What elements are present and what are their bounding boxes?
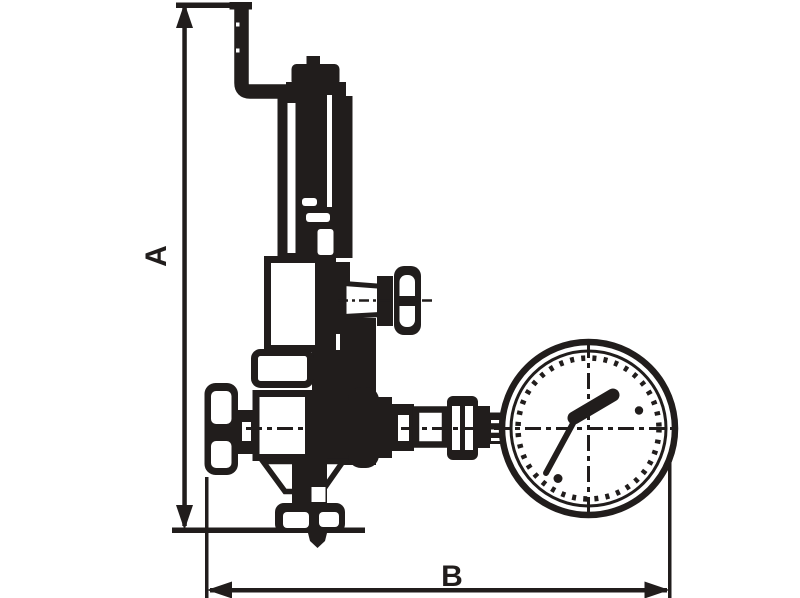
adjusting-cap (286, 56, 346, 100)
dim-b-extension-left (205, 477, 209, 598)
dim-b-arrow-right-icon (645, 582, 670, 598)
vent-pipe (230, 2, 299, 92)
dial-mark (635, 406, 643, 414)
dim-b-label: B (441, 560, 463, 593)
needle-counterweight (554, 474, 563, 483)
body-block (256, 394, 309, 458)
spring-bonnet (278, 95, 353, 258)
yoke-tube (268, 260, 319, 349)
dim-a-arrow-down-icon (176, 505, 193, 530)
valve-drawing: A B (0, 0, 800, 598)
valve-body (255, 350, 380, 548)
dim-b-line (210, 588, 667, 593)
dim-b-arrow-left-icon (207, 582, 232, 598)
vent-pipe-cap (230, 2, 253, 10)
dim-a-line (182, 6, 187, 526)
bottom-outlet-tip (308, 533, 327, 548)
dim-a-label: A (140, 245, 173, 267)
technical-drawing-canvas: A B (0, 0, 800, 598)
body-top-flange (255, 353, 311, 385)
vent-pipe-elbow (242, 5, 299, 92)
